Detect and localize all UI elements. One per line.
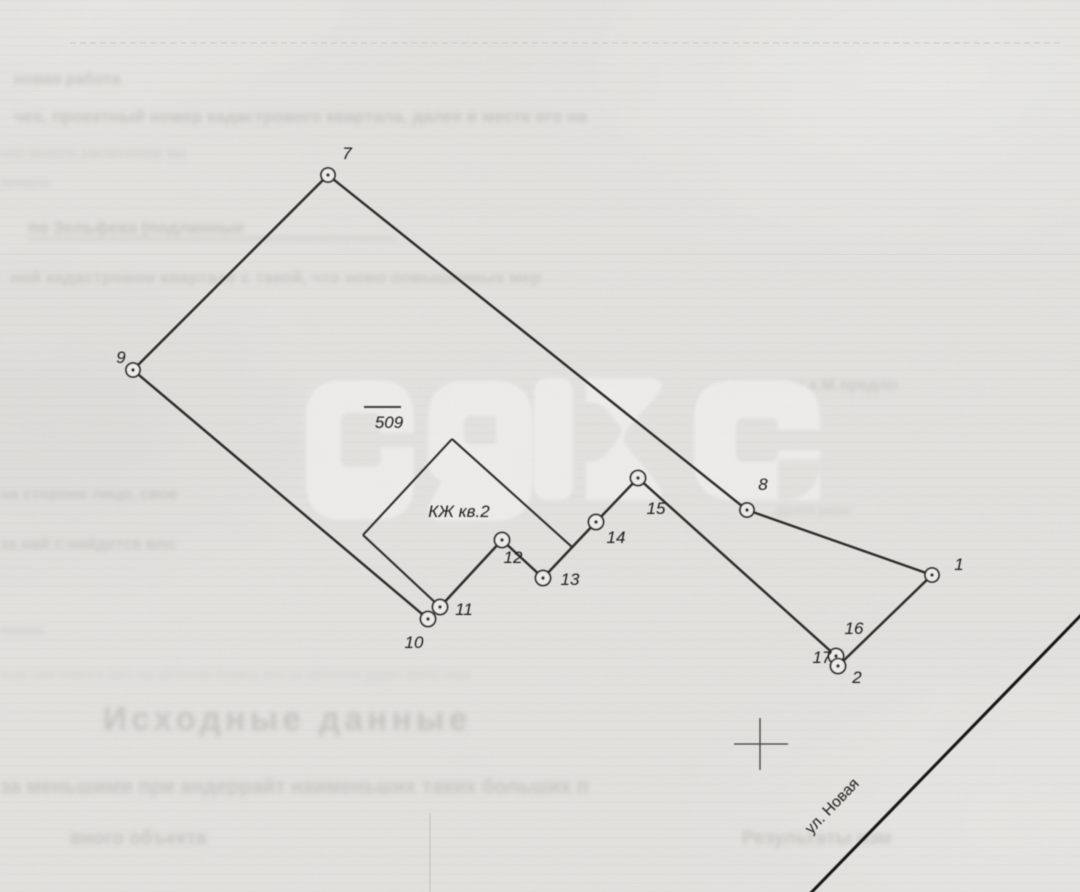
svg-text:КЖ кв.2: КЖ кв.2	[428, 502, 490, 521]
svg-text:2: 2	[851, 668, 862, 687]
svg-text:10: 10	[405, 633, 424, 652]
svg-text:9: 9	[116, 348, 126, 367]
svg-text:8: 8	[758, 475, 768, 494]
svg-text:12: 12	[504, 548, 523, 567]
svg-text:16: 16	[845, 619, 864, 638]
svg-text:15: 15	[647, 499, 666, 518]
svg-text:509: 509	[375, 413, 404, 432]
svg-text:ул. Новая: ул. Новая	[802, 775, 863, 837]
svg-text:14: 14	[607, 528, 626, 547]
svg-text:17: 17	[813, 648, 832, 667]
svg-text:7: 7	[342, 144, 352, 163]
svg-text:1: 1	[954, 555, 963, 574]
svg-text:13: 13	[561, 570, 580, 589]
svg-text:11: 11	[455, 600, 473, 619]
